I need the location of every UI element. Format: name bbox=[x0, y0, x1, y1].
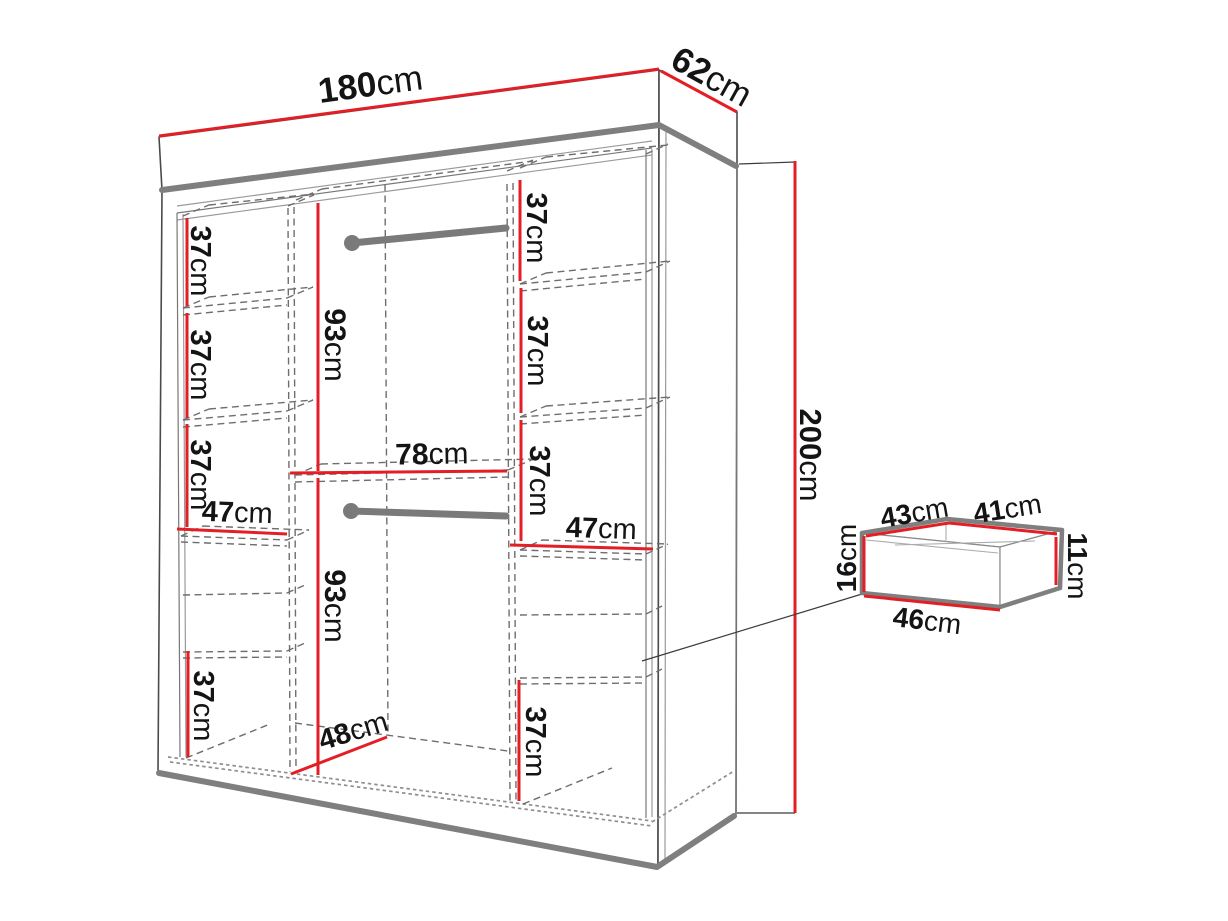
left-column-width-label: 47cm bbox=[201, 496, 273, 530]
wardrobe-height-label: 200cm bbox=[793, 408, 828, 501]
middle-column-width-label: 78cm bbox=[395, 437, 469, 471]
drawer-top-width-label: 41cm bbox=[971, 488, 1043, 529]
right-bottom-height-label: 37cm bbox=[519, 707, 551, 778]
hanging-rail-top-cap bbox=[344, 235, 360, 251]
right-shelf-height-label-2: 37cm bbox=[521, 316, 553, 387]
diagram-canvas: 180cm 62cm 200cm 37cm 37cm 37cm 47cm 37c… bbox=[0, 0, 1228, 921]
left-shelf-height-label-1: 37cm bbox=[184, 226, 216, 297]
bottom-hanging-height-label: 93cm bbox=[318, 569, 351, 642]
left-bottom-height-label: 37cm bbox=[187, 671, 219, 742]
drawer-back-height-label: 11cm bbox=[1062, 533, 1093, 600]
drawer-detail bbox=[862, 519, 1062, 610]
hanging-rail-bottom-cap bbox=[343, 503, 359, 519]
drawer-front-height-label: 16cm bbox=[831, 524, 862, 592]
hanging-rail-bottom bbox=[351, 511, 506, 516]
right-shelf-height-label-3: 37cm bbox=[523, 446, 555, 517]
right-column-width-label: 47cm bbox=[565, 512, 637, 546]
left-shelf-height-label-2: 37cm bbox=[184, 330, 216, 401]
top-hanging-height-label: 93cm bbox=[318, 308, 351, 381]
drawer-bottom-width-label: 46cm bbox=[891, 601, 963, 640]
wardrobe-dimension-diagram: 180cm 62cm 200cm 37cm 37cm 37cm 47cm 37c… bbox=[0, 0, 1228, 921]
right-shelf-height-label-1: 37cm bbox=[520, 193, 552, 264]
wardrobe-right-face bbox=[658, 124, 737, 865]
